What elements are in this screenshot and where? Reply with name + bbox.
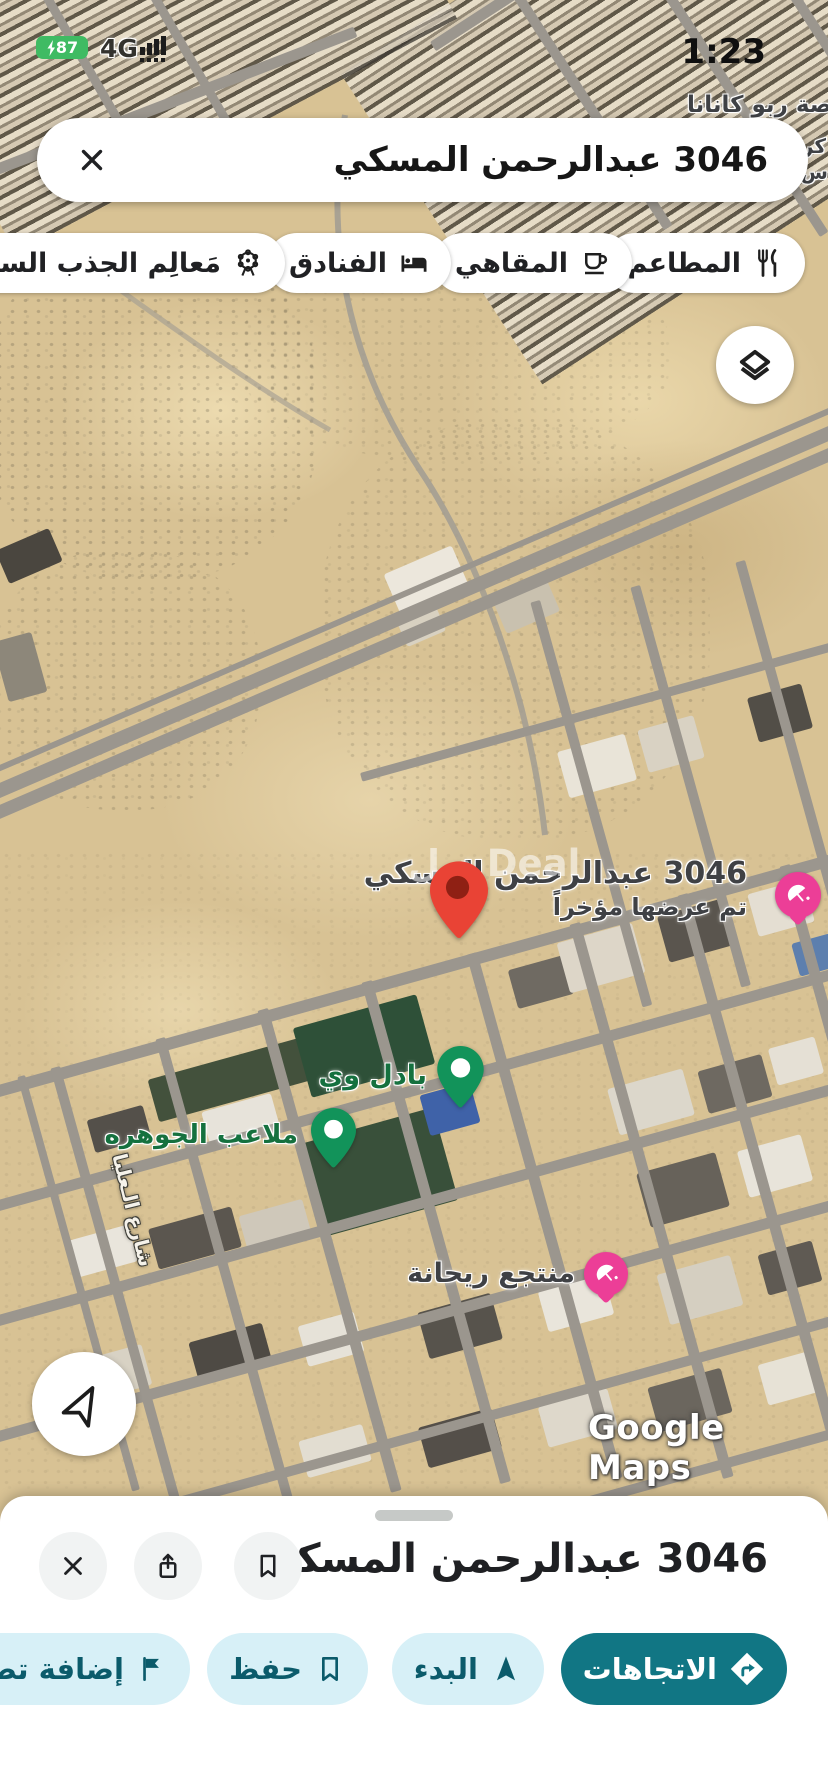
add-label-button[interactable]: إضافة تصنيف — [0, 1633, 190, 1705]
flag-icon — [136, 1653, 168, 1685]
poi-label-jawhara-courts[interactable]: ملاعب الجوهره — [105, 1120, 298, 1150]
layers-icon — [734, 344, 776, 386]
signal-bars-icon — [140, 36, 166, 62]
bookmark-icon — [253, 1551, 283, 1581]
close-icon[interactable] — [75, 143, 109, 177]
action-label: الاتجاهات — [583, 1652, 717, 1686]
poi-pin-rayhana-resort[interactable] — [584, 1252, 628, 1296]
battery-percent: 87 — [56, 38, 78, 57]
umbrella-icon — [593, 1261, 620, 1288]
poi-pin-jawhara-courts[interactable] — [311, 1108, 356, 1168]
chip-cafes[interactable]: المقاهي — [433, 233, 632, 293]
attraction-icon — [233, 248, 263, 278]
battery-badge: 87 — [36, 36, 88, 59]
chip-label: مَعالِم الجذب السياحي — [0, 248, 221, 279]
directions-icon — [729, 1651, 765, 1687]
destination-subtitle: تم عرضها مؤخراً — [364, 893, 747, 921]
status-bar: 87 4G 1:23 — [0, 0, 828, 70]
search-bar[interactable]: 3046 عبدالرحمن المسكي — [37, 118, 808, 202]
cafe-icon — [580, 248, 610, 278]
chip-hotels[interactable]: الفنادق — [267, 233, 451, 293]
search-query[interactable]: 3046 عبدالرحمن المسكي — [333, 140, 768, 180]
action-label: حفظ — [229, 1652, 302, 1686]
poi-label-padel-way[interactable]: بادل وي — [319, 1060, 428, 1091]
start-navigation-icon — [490, 1653, 522, 1685]
share-icon — [153, 1551, 183, 1581]
hotel-icon — [399, 248, 429, 278]
share-button[interactable] — [134, 1532, 202, 1600]
bookmark-button[interactable] — [234, 1532, 302, 1600]
chip-restaurants[interactable]: المطاعم — [605, 233, 805, 293]
action-label: إضافة تصنيف — [0, 1652, 124, 1686]
place-bottom-sheet[interactable]: 3046 عبدالرحمن المسكي — [0, 1496, 828, 1792]
navigation-arrow-icon — [53, 1373, 115, 1435]
my-location-button[interactable] — [32, 1352, 136, 1456]
network-type: 4G — [100, 34, 138, 63]
google-maps-screen: صة ربو كانانا كر س تق شا ديل Deal 3046 ع… — [0, 0, 828, 1792]
google-maps-watermark: Google Maps — [588, 1408, 828, 1488]
save-button[interactable]: حفظ — [207, 1633, 368, 1705]
chip-label: الفنادق — [289, 248, 387, 279]
poi-pin-padel-way[interactable] — [437, 1046, 484, 1108]
clock: 1:23 — [681, 32, 766, 72]
poi-pin-activity[interactable] — [775, 872, 821, 918]
close-icon — [58, 1551, 88, 1581]
directions-button[interactable]: الاتجاهات — [561, 1633, 787, 1705]
restaurant-icon — [753, 248, 783, 278]
chip-label: المقاهي — [455, 248, 568, 279]
start-button[interactable]: البدء — [392, 1633, 544, 1705]
poi-label-rayhana-resort[interactable]: منتجع ريحانة — [407, 1258, 575, 1289]
chip-attractions[interactable]: مَعالِم الجذب السياحي — [0, 233, 285, 293]
chip-label: المطاعم — [627, 248, 741, 279]
map-area-label: صة ربو كانانا — [687, 92, 828, 118]
bookmark-icon — [314, 1653, 346, 1685]
place-title: 3046 عبدالرحمن المسكي — [257, 1536, 768, 1582]
drag-handle[interactable] — [375, 1510, 453, 1521]
action-label: البدء — [414, 1652, 478, 1686]
destination-pin[interactable] — [430, 852, 488, 948]
sheet-close-button[interactable] — [39, 1532, 107, 1600]
charging-bolt-icon — [46, 40, 55, 56]
layers-button[interactable] — [716, 326, 794, 404]
umbrella-icon — [784, 881, 812, 909]
